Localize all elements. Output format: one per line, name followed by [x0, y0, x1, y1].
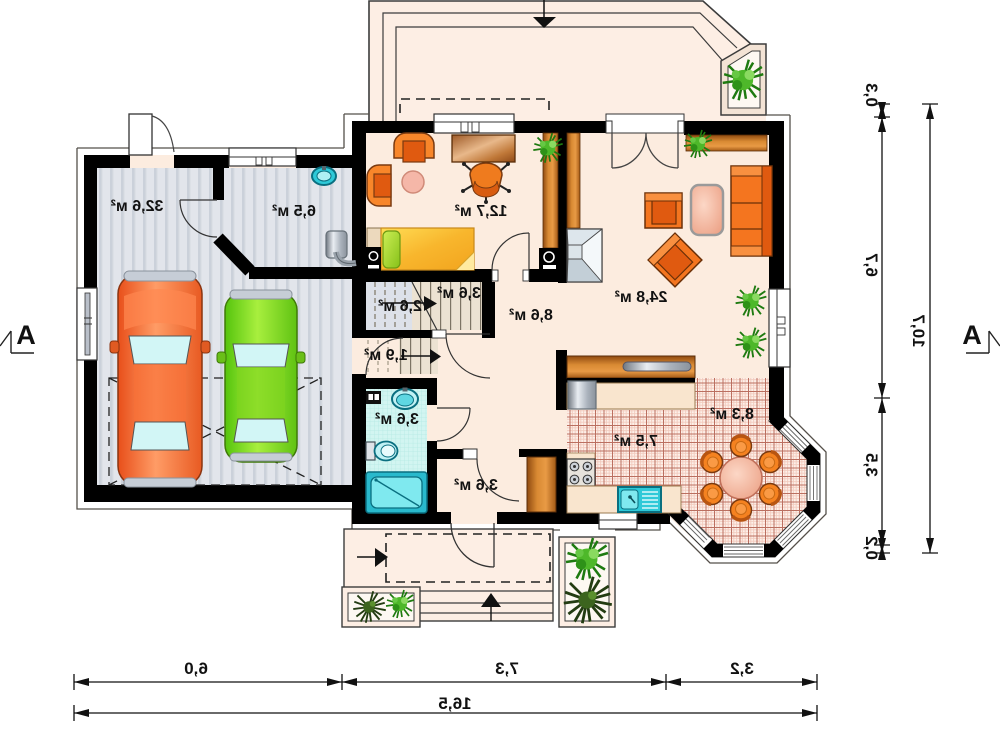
svg-text:7,5 м²: 7,5 м² — [614, 433, 658, 450]
svg-text:8,3 м²: 8,3 м² — [710, 406, 754, 423]
svg-text:0,3: 0,3 — [862, 83, 881, 107]
svg-text:A: A — [962, 320, 982, 350]
svg-text:1,9 м²: 1,9 м² — [364, 347, 408, 364]
svg-text:32,6 м²: 32,6 м² — [111, 198, 164, 215]
svg-text:12,7 м²: 12,7 м² — [455, 203, 508, 220]
svg-text:6,7: 6,7 — [862, 253, 881, 277]
svg-text:10,7: 10,7 — [909, 314, 928, 347]
svg-text:2,6 м²: 2,6 м² — [378, 298, 422, 315]
svg-text:0,2: 0,2 — [862, 536, 881, 560]
svg-text:24,8 м²: 24,8 м² — [615, 289, 668, 306]
svg-text:7,3: 7,3 — [495, 659, 519, 678]
svg-text:3,6 м²: 3,6 м² — [454, 477, 498, 494]
svg-text:8,6 м²: 8,6 м² — [509, 307, 553, 324]
svg-text:3,2: 3,2 — [730, 659, 754, 678]
svg-text:A: A — [16, 320, 36, 350]
svg-text:3,5: 3,5 — [862, 453, 881, 477]
svg-text:6,0: 6,0 — [184, 659, 208, 678]
svg-text:3,6 м²: 3,6 м² — [375, 411, 419, 428]
svg-text:3,6 м²: 3,6 м² — [437, 285, 481, 302]
svg-text:16,5: 16,5 — [438, 694, 471, 713]
svg-text:6,5 м²: 6,5 м² — [272, 203, 316, 220]
